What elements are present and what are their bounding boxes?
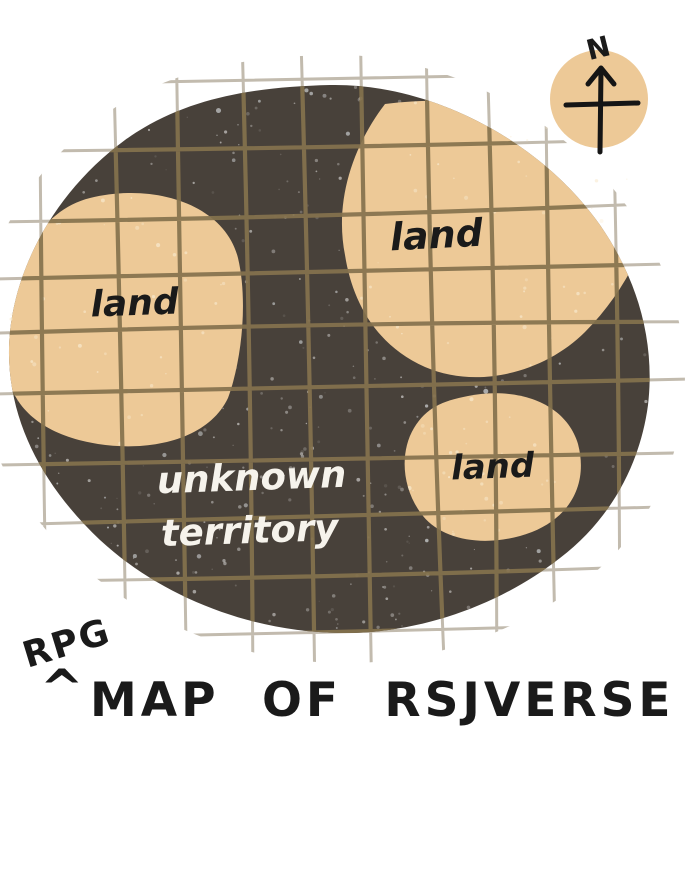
land-label-southeast: land bbox=[450, 446, 535, 489]
land-label-west: land bbox=[90, 281, 181, 325]
territory-label-line2: territory bbox=[160, 506, 341, 555]
map-canvas: land land land unknown territory N RPG ^… bbox=[0, 0, 700, 876]
title-caret: ^ bbox=[40, 659, 84, 719]
land-label-northeast: land bbox=[389, 211, 485, 260]
map-title: MAP OF RSJVERSE bbox=[90, 673, 675, 728]
compass-needle-horizontal bbox=[566, 103, 638, 105]
compass-rose: N bbox=[550, 29, 648, 152]
compass-needle-vertical bbox=[600, 70, 601, 152]
territory-label-line1: unknown bbox=[156, 453, 347, 503]
